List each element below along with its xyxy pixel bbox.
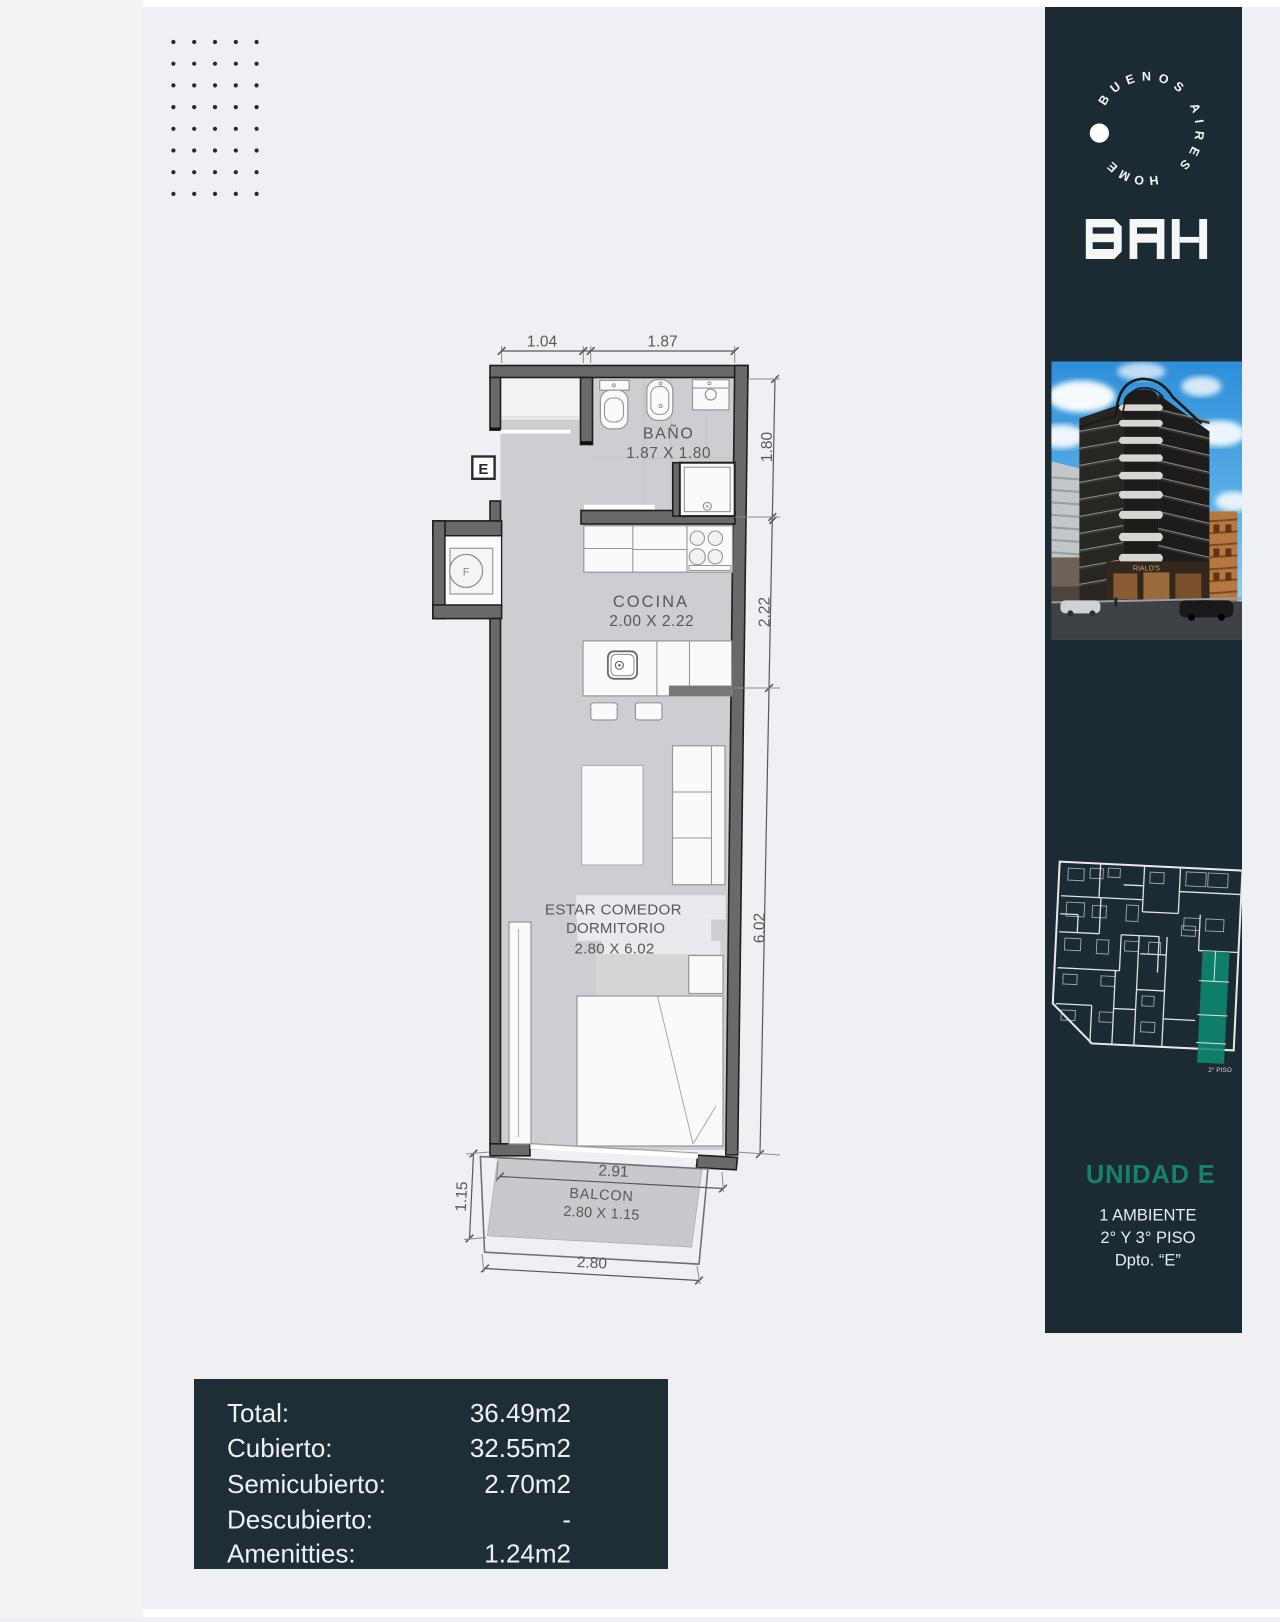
svg-text:BAÑO: BAÑO: [643, 423, 694, 443]
svg-text:Total:: Total:: [227, 1398, 289, 1428]
svg-text:-: -: [562, 1505, 571, 1535]
svg-text:2° PISO: 2° PISO: [1208, 1066, 1232, 1074]
svg-text:1 AMBIENTE: 1 AMBIENTE: [1099, 1206, 1196, 1224]
svg-text:2.00 X 2.22: 2.00 X 2.22: [609, 613, 694, 630]
svg-text:1.24m2: 1.24m2: [484, 1539, 571, 1569]
svg-text:E: E: [478, 461, 488, 478]
svg-text:DORMITORIO: DORMITORIO: [566, 920, 665, 937]
svg-text:1.87 X 1.80: 1.87 X 1.80: [626, 445, 711, 462]
svg-text:COCINA: COCINA: [613, 593, 689, 611]
svg-text:Descubierto:: Descubierto:: [227, 1505, 373, 1535]
svg-text:1.80: 1.80: [759, 432, 776, 463]
svg-text:2.80 X 6.02: 2.80 X 6.02: [574, 941, 654, 958]
svg-text:1.15: 1.15: [453, 1181, 472, 1212]
svg-text:ESTAR COMEDOR: ESTAR COMEDOR: [545, 902, 682, 919]
svg-text:BALCON: BALCON: [569, 1186, 634, 1205]
svg-text:RIALO'S: RIALO'S: [1133, 565, 1160, 572]
svg-text:Amenitties:: Amenitties:: [227, 1539, 356, 1569]
svg-text:F: F: [463, 567, 470, 579]
svg-text:Semicubierto:: Semicubierto:: [227, 1469, 386, 1499]
svg-text:1.87: 1.87: [647, 334, 677, 351]
svg-text:32.55m2: 32.55m2: [470, 1433, 571, 1463]
svg-text:2° Y 3° PISO: 2° Y 3° PISO: [1100, 1229, 1195, 1247]
svg-text:UNIDAD E: UNIDAD E: [1086, 1161, 1216, 1189]
svg-text:2.70m2: 2.70m2: [484, 1469, 571, 1499]
svg-text:36.49m2: 36.49m2: [470, 1398, 571, 1428]
svg-text:2.22: 2.22: [757, 597, 774, 627]
svg-text:Dpto. “E”: Dpto. “E”: [1115, 1251, 1181, 1269]
svg-text:Cubierto:: Cubierto:: [227, 1433, 333, 1463]
svg-text:6.02: 6.02: [751, 913, 768, 943]
svg-text:1.04: 1.04: [527, 334, 558, 351]
svg-text:2.80: 2.80: [576, 1254, 607, 1273]
svg-text:2.91: 2.91: [598, 1162, 629, 1181]
